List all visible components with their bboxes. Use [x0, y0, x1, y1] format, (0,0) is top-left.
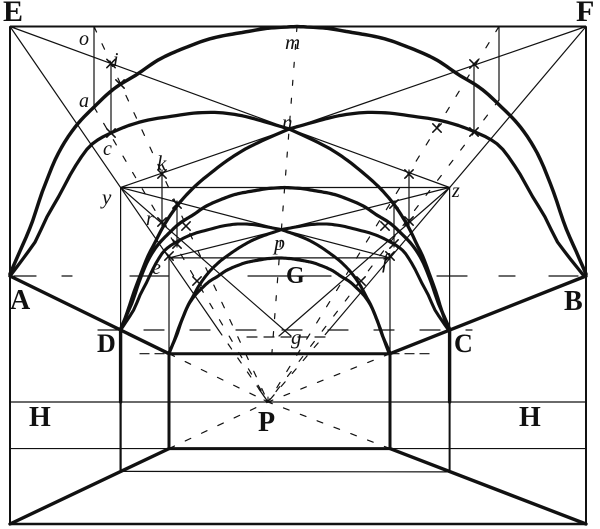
svg-text:E: E — [3, 0, 23, 28]
svg-text:r: r — [146, 208, 154, 230]
svg-text:a: a — [79, 90, 89, 112]
svg-text:H: H — [29, 402, 51, 433]
svg-text:z: z — [451, 180, 460, 202]
svg-text:P: P — [258, 407, 275, 438]
svg-text:c: c — [103, 138, 112, 160]
svg-text:p: p — [272, 230, 285, 255]
svg-text:e: e — [152, 257, 161, 279]
svg-text:D: D — [97, 329, 116, 358]
svg-text:F: F — [576, 0, 594, 28]
svg-text:g: g — [291, 325, 302, 349]
svg-text:C: C — [454, 329, 473, 358]
svg-text:m: m — [285, 30, 300, 54]
svg-text:k: k — [157, 151, 167, 175]
svg-text:H: H — [519, 402, 541, 433]
svg-text:y: y — [100, 185, 112, 209]
svg-text:B: B — [564, 286, 583, 317]
svg-text:i: i — [113, 49, 119, 71]
svg-text:A: A — [10, 285, 31, 316]
svg-text:G: G — [286, 263, 305, 289]
svg-text:n: n — [282, 110, 293, 134]
svg-text:o: o — [79, 28, 89, 50]
